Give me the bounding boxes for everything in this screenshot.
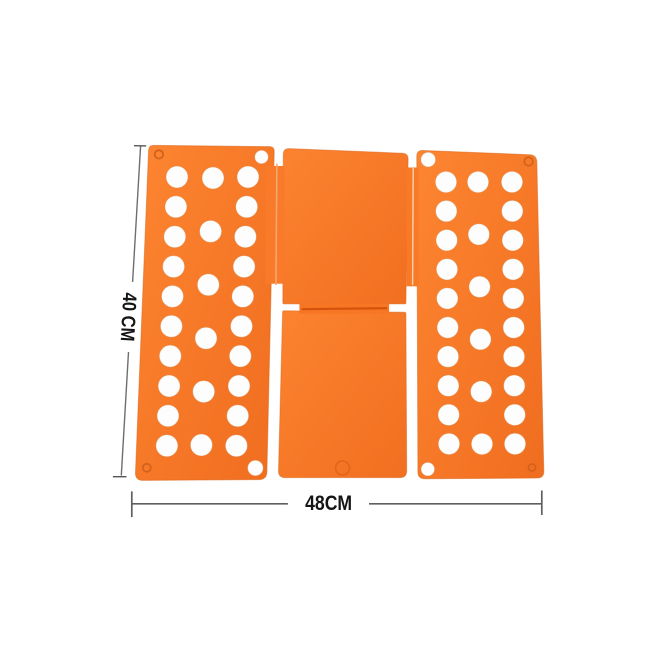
svg-text:48CM: 48CM [305,491,352,515]
svg-text:40 CM: 40 CM [116,292,140,342]
